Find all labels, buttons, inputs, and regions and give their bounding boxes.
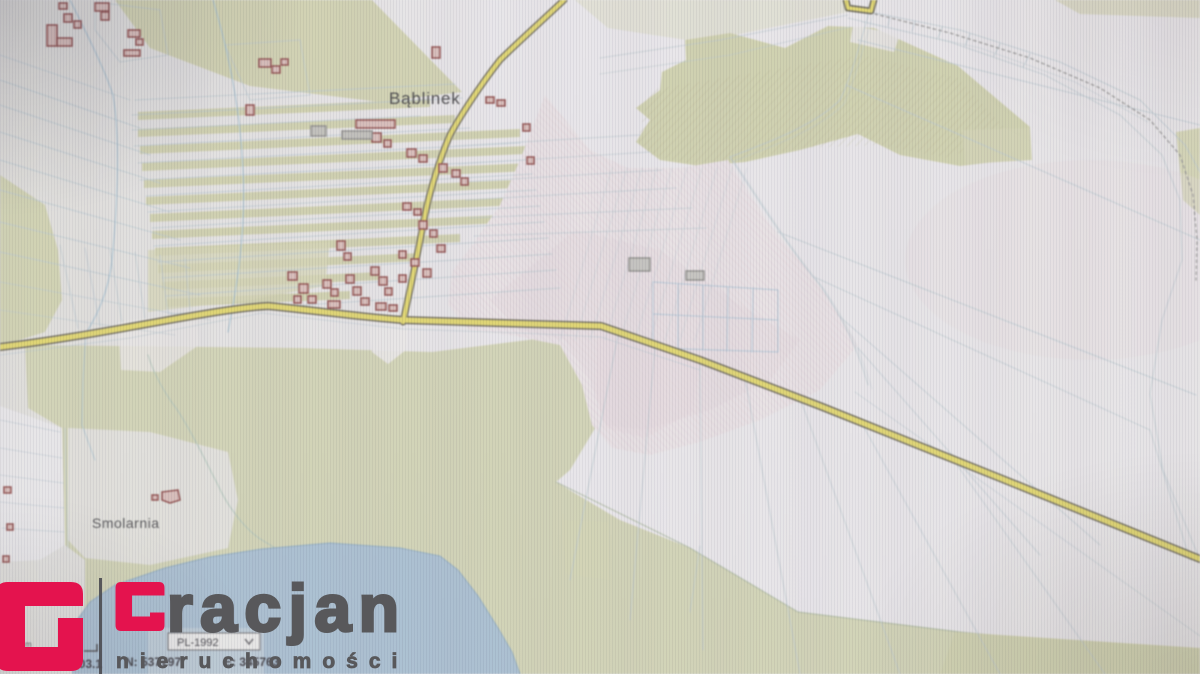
svg-text:nieruchomości: nieruchomości	[116, 650, 408, 673]
svg-text:racjan: racjan	[167, 571, 406, 645]
